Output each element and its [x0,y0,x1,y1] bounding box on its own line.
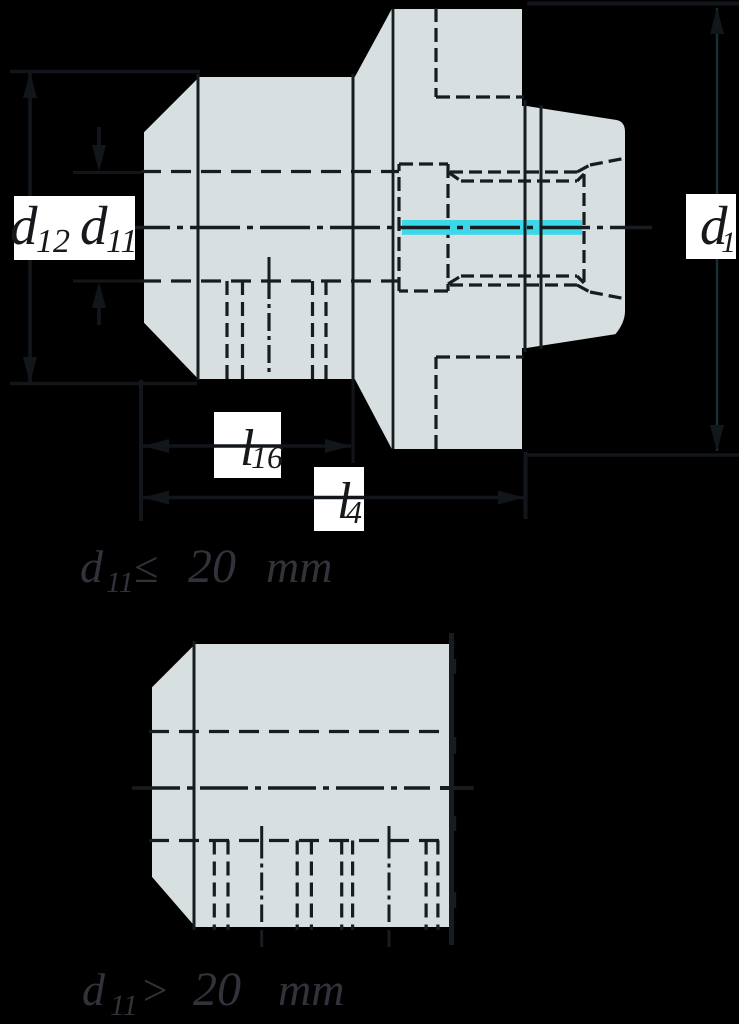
svg-text:20: 20 [188,540,236,593]
svg-text:11: 11 [106,223,137,260]
svg-text:d: d [80,541,104,592]
svg-text:d: d [10,195,38,256]
svg-text:mm: mm [266,541,332,592]
svg-text:16: 16 [251,439,283,475]
svg-text:4: 4 [346,494,362,530]
svg-text:≤: ≤ [134,543,158,592]
svg-text:12: 12 [36,223,70,260]
svg-text:d: d [82,964,106,1015]
svg-text:20: 20 [193,963,241,1016]
svg-text:11: 11 [110,989,138,1022]
svg-text:>: > [140,966,170,1015]
svg-text:11: 11 [106,566,134,599]
svg-text:1: 1 [721,226,736,259]
svg-text:mm: mm [278,964,344,1015]
svg-text:d: d [80,195,108,256]
